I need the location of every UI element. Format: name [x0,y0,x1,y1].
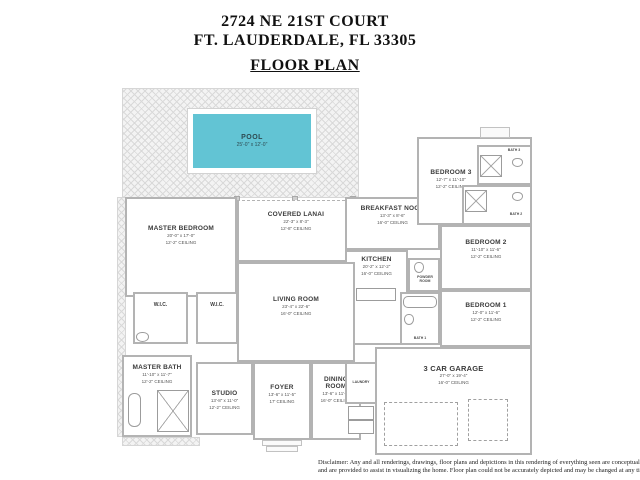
studio-ceiling: 12'-2" CEILING [198,405,251,411]
room-bedroom-2: BEDROOM 2 11'-10" x 11'-6" 12'-2" CEILIN… [440,225,532,290]
shower-icon [480,155,502,177]
bath-2-label: BATH 2 [502,212,530,216]
room-studio: STUDIO 13'-8" x 11'-0" 12'-2" CEILING [196,362,253,435]
bathtub-icon [403,296,437,308]
toilet-icon [512,158,523,167]
covered-lanai-dims: 22'-3" x 8'-3" [239,219,353,225]
master-bedroom-dims: 20'-0" x 17'-0" [127,233,235,239]
covered-lanai-ceiling: 12'-8" CEILING [239,226,353,232]
studio-name: STUDIO [198,390,251,397]
room-wic-right: W.I.C. [196,292,238,344]
living-room-name: LIVING ROOM [239,296,353,303]
living-room-dims: 23'-4" x 22'-6" [239,304,353,310]
master-bath-dims: 11'-10" x 11'-7" [124,372,190,378]
garage-ceiling: 16'-0" CEILING [377,380,530,386]
bedroom-1-name: BEDROOM 1 [442,302,530,309]
pool: POOL 25'-0" x 12'-0" [188,109,316,173]
bottom-walkway [122,437,200,446]
address-line-1: 2724 NE 21ST COURT [60,12,550,31]
master-bedroom-name: MASTER BEDROOM [127,225,235,232]
bedroom-1-dims: 12'-0" x 11'-6" [442,310,530,316]
pool-label: POOL [241,134,263,141]
room-foyer: FOYER 13'-6" x 11'-5" 17' CEILING [253,362,311,440]
foyer-name: FOYER [255,384,309,391]
garage-name: 3 CAR GARAGE [377,365,530,372]
toilet-icon [136,332,149,342]
bath-1-label: BATH 1 [406,336,434,340]
master-bedroom-ceiling: 12'-2" CEILING [127,240,235,246]
pool-dimensions: 25'-0" x 12'-0" [237,142,268,148]
master-bath-name: MASTER BATH [124,364,190,371]
kitchen-island [356,288,396,301]
bedroom-3-dims: 12'-7" x 11'-10" [419,177,483,183]
toilet-icon [404,314,414,325]
room-covered-lanai: COVERED LANAI 22'-3" x 8'-3" 12'-8" CEIL… [237,200,355,262]
wic-left-label: W.I.C. [135,302,186,308]
floor-plan-page: 2724 NE 21ST COURT FT. LAUDERDALE, FL 33… [0,0,640,480]
toilet-icon [414,262,424,273]
room-living-room: LIVING ROOM 23'-4" x 22'-6" 16'-0" CEILI… [237,262,355,362]
covered-lanai-name: COVERED LANAI [239,211,353,218]
address-line-2: FT. LAUDERDALE, FL 33305 [60,31,550,50]
garage-door-double [384,402,458,446]
master-bath-ceiling: 12'-2" CEILING [124,379,190,385]
foyer-dims: 13'-6" x 11'-5" [255,392,309,398]
bedroom-2-dims: 11'-10" x 11'-6" [442,247,530,253]
kitchen-dims: 20'-2" x 12'-2" [347,264,406,270]
dryer-icon [348,420,374,434]
bedroom-2-ceiling: 12'-2" CEILING [442,254,530,260]
corner-shower-icon [157,390,189,432]
header: 2724 NE 21ST COURT FT. LAUDERDALE, FL 33… [60,12,550,75]
foyer-ceiling: 17' CEILING [255,399,309,405]
entry-step [266,446,298,452]
disclaimer: Disclaimer: Any and all renderings, draw… [318,459,640,475]
entry-portico [480,127,510,138]
disclaimer-line-1: Disclaimer: Any and all renderings, draw… [318,459,640,467]
shower-icon [465,190,487,212]
room-laundry: LAUNDRY [345,362,377,404]
kitchen-name: KITCHEN [347,256,406,263]
wic-right-label: W.I.C. [198,302,236,308]
living-room-ceiling: 16'-0" CEILING [239,311,353,317]
garage-dims: 27'-0" x 19'-4" [377,373,530,379]
page-title: FLOOR PLAN [60,57,550,75]
room-bedroom-1: BEDROOM 1 12'-0" x 11'-6" 12'-2" CEILING [440,290,532,347]
bath-3-label: BATH 3 [500,148,528,152]
laundry-label: LAUNDRY [347,380,375,384]
garage-door-single [468,399,508,441]
washer-icon [348,406,374,420]
disclaimer-line-2: and are provided to assist in visualizin… [318,467,640,475]
bedroom-1-ceiling: 12'-2" CEILING [442,317,530,323]
kitchen-ceiling: 16'-0" CEILING [347,271,406,277]
toilet-icon [512,192,523,201]
bedroom-3-name: BEDROOM 3 [419,169,483,176]
bedroom-2-name: BEDROOM 2 [442,239,530,246]
powder-room-label: POWDER ROOM [412,275,438,283]
bathtub-icon [128,393,141,427]
room-master-bedroom: MASTER BEDROOM 20'-0" x 17'-0" 12'-2" CE… [125,197,237,297]
studio-dims: 13'-8" x 11'-0" [198,398,251,404]
